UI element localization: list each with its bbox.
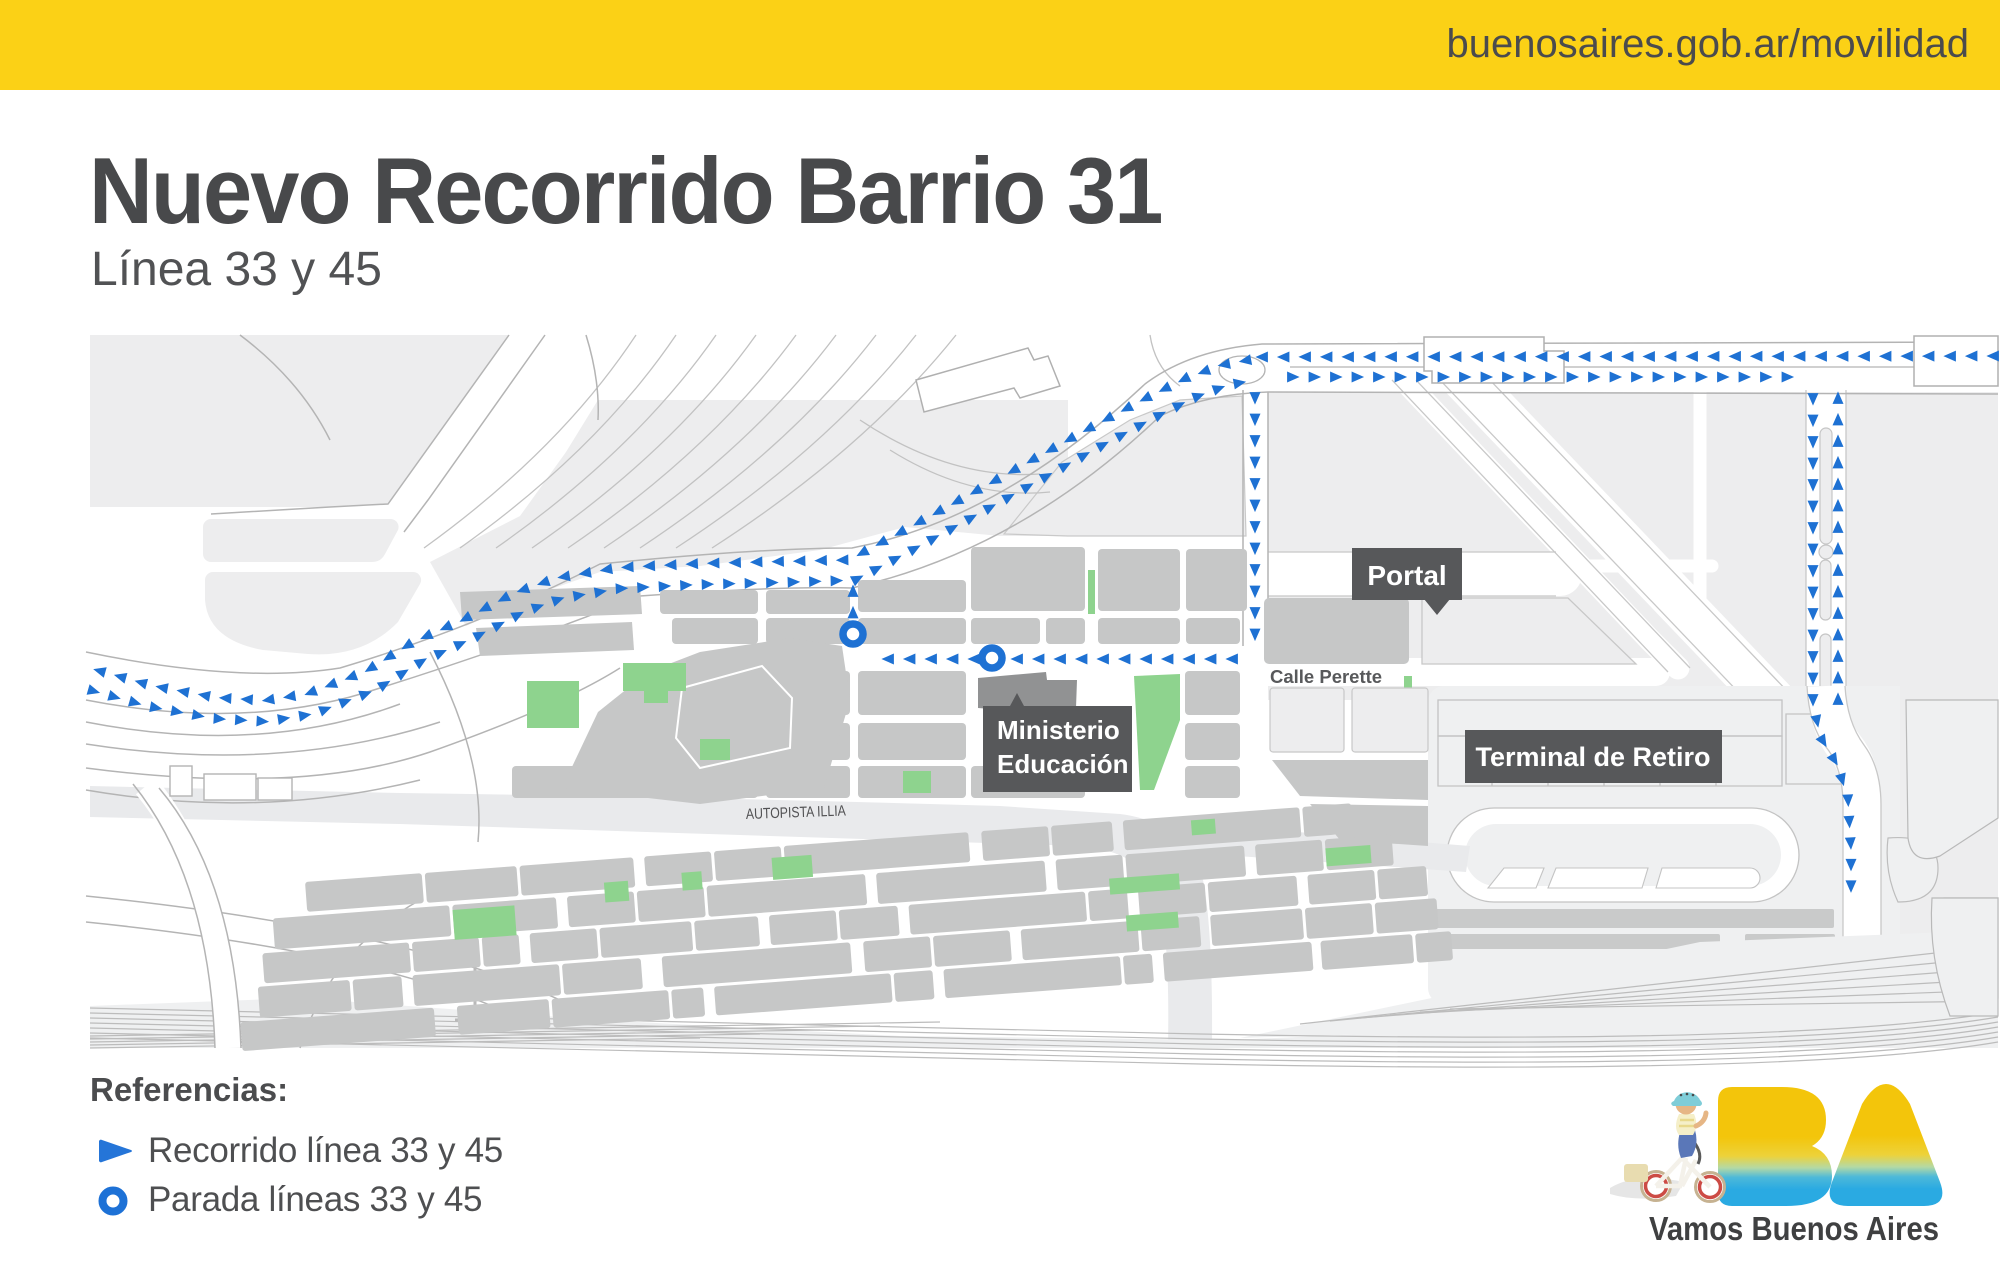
svg-text:Educación: Educación	[997, 749, 1128, 779]
svg-text:Calle Perette: Calle Perette	[1270, 666, 1382, 687]
svg-text:Terminal de Retiro: Terminal de Retiro	[1475, 742, 1710, 772]
svg-text:Ministerio: Ministerio	[997, 715, 1120, 745]
svg-text:AUTOPISTA ILLIA: AUTOPISTA ILLIA	[746, 803, 847, 823]
svg-text:Vamos Buenos Aires: Vamos Buenos Aires	[1649, 1210, 1939, 1247]
svg-text:Portal: Portal	[1367, 560, 1446, 591]
